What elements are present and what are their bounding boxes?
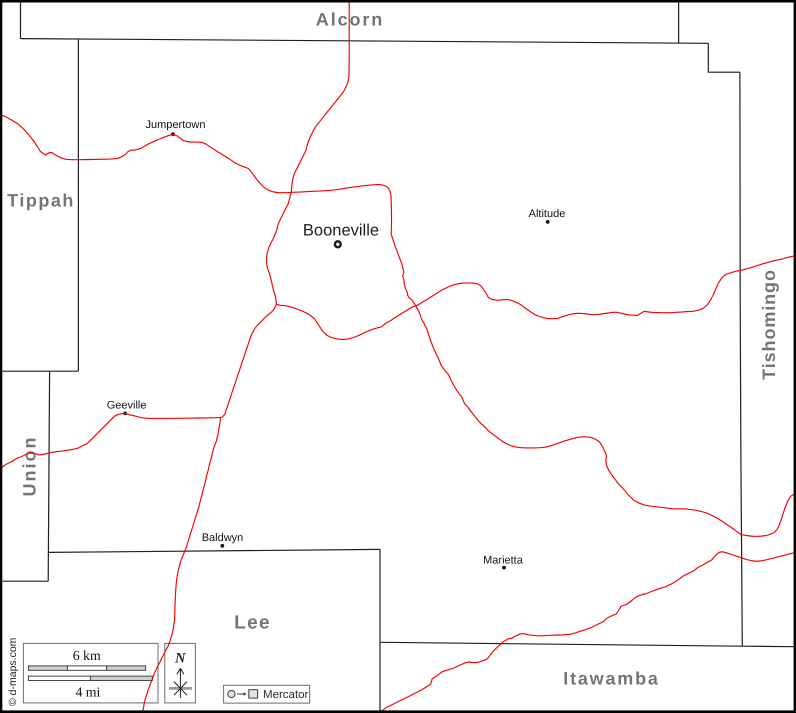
- svg-text:Tishomingo: Tishomingo: [759, 269, 779, 380]
- svg-text:Jumpertown: Jumpertown: [146, 119, 206, 131]
- svg-text:© d-maps.com: © d-maps.com: [7, 637, 19, 706]
- svg-text:Tippah: Tippah: [7, 191, 75, 211]
- svg-text:4 mi: 4 mi: [75, 684, 100, 699]
- svg-text:6 km: 6 km: [73, 648, 101, 663]
- svg-text:Lee: Lee: [234, 613, 271, 634]
- svg-text:Itawamba: Itawamba: [563, 669, 659, 689]
- svg-text:Booneville: Booneville: [303, 221, 379, 239]
- svg-text:N: N: [174, 650, 186, 666]
- svg-text:Union: Union: [20, 436, 40, 497]
- svg-text:Geeville: Geeville: [107, 399, 147, 411]
- svg-text:Baldwyn: Baldwyn: [202, 532, 244, 544]
- svg-text:Altitude: Altitude: [529, 208, 566, 220]
- svg-text:Alcorn: Alcorn: [316, 10, 384, 30]
- svg-text:Mercator: Mercator: [263, 689, 309, 701]
- svg-text:Marietta: Marietta: [483, 555, 524, 567]
